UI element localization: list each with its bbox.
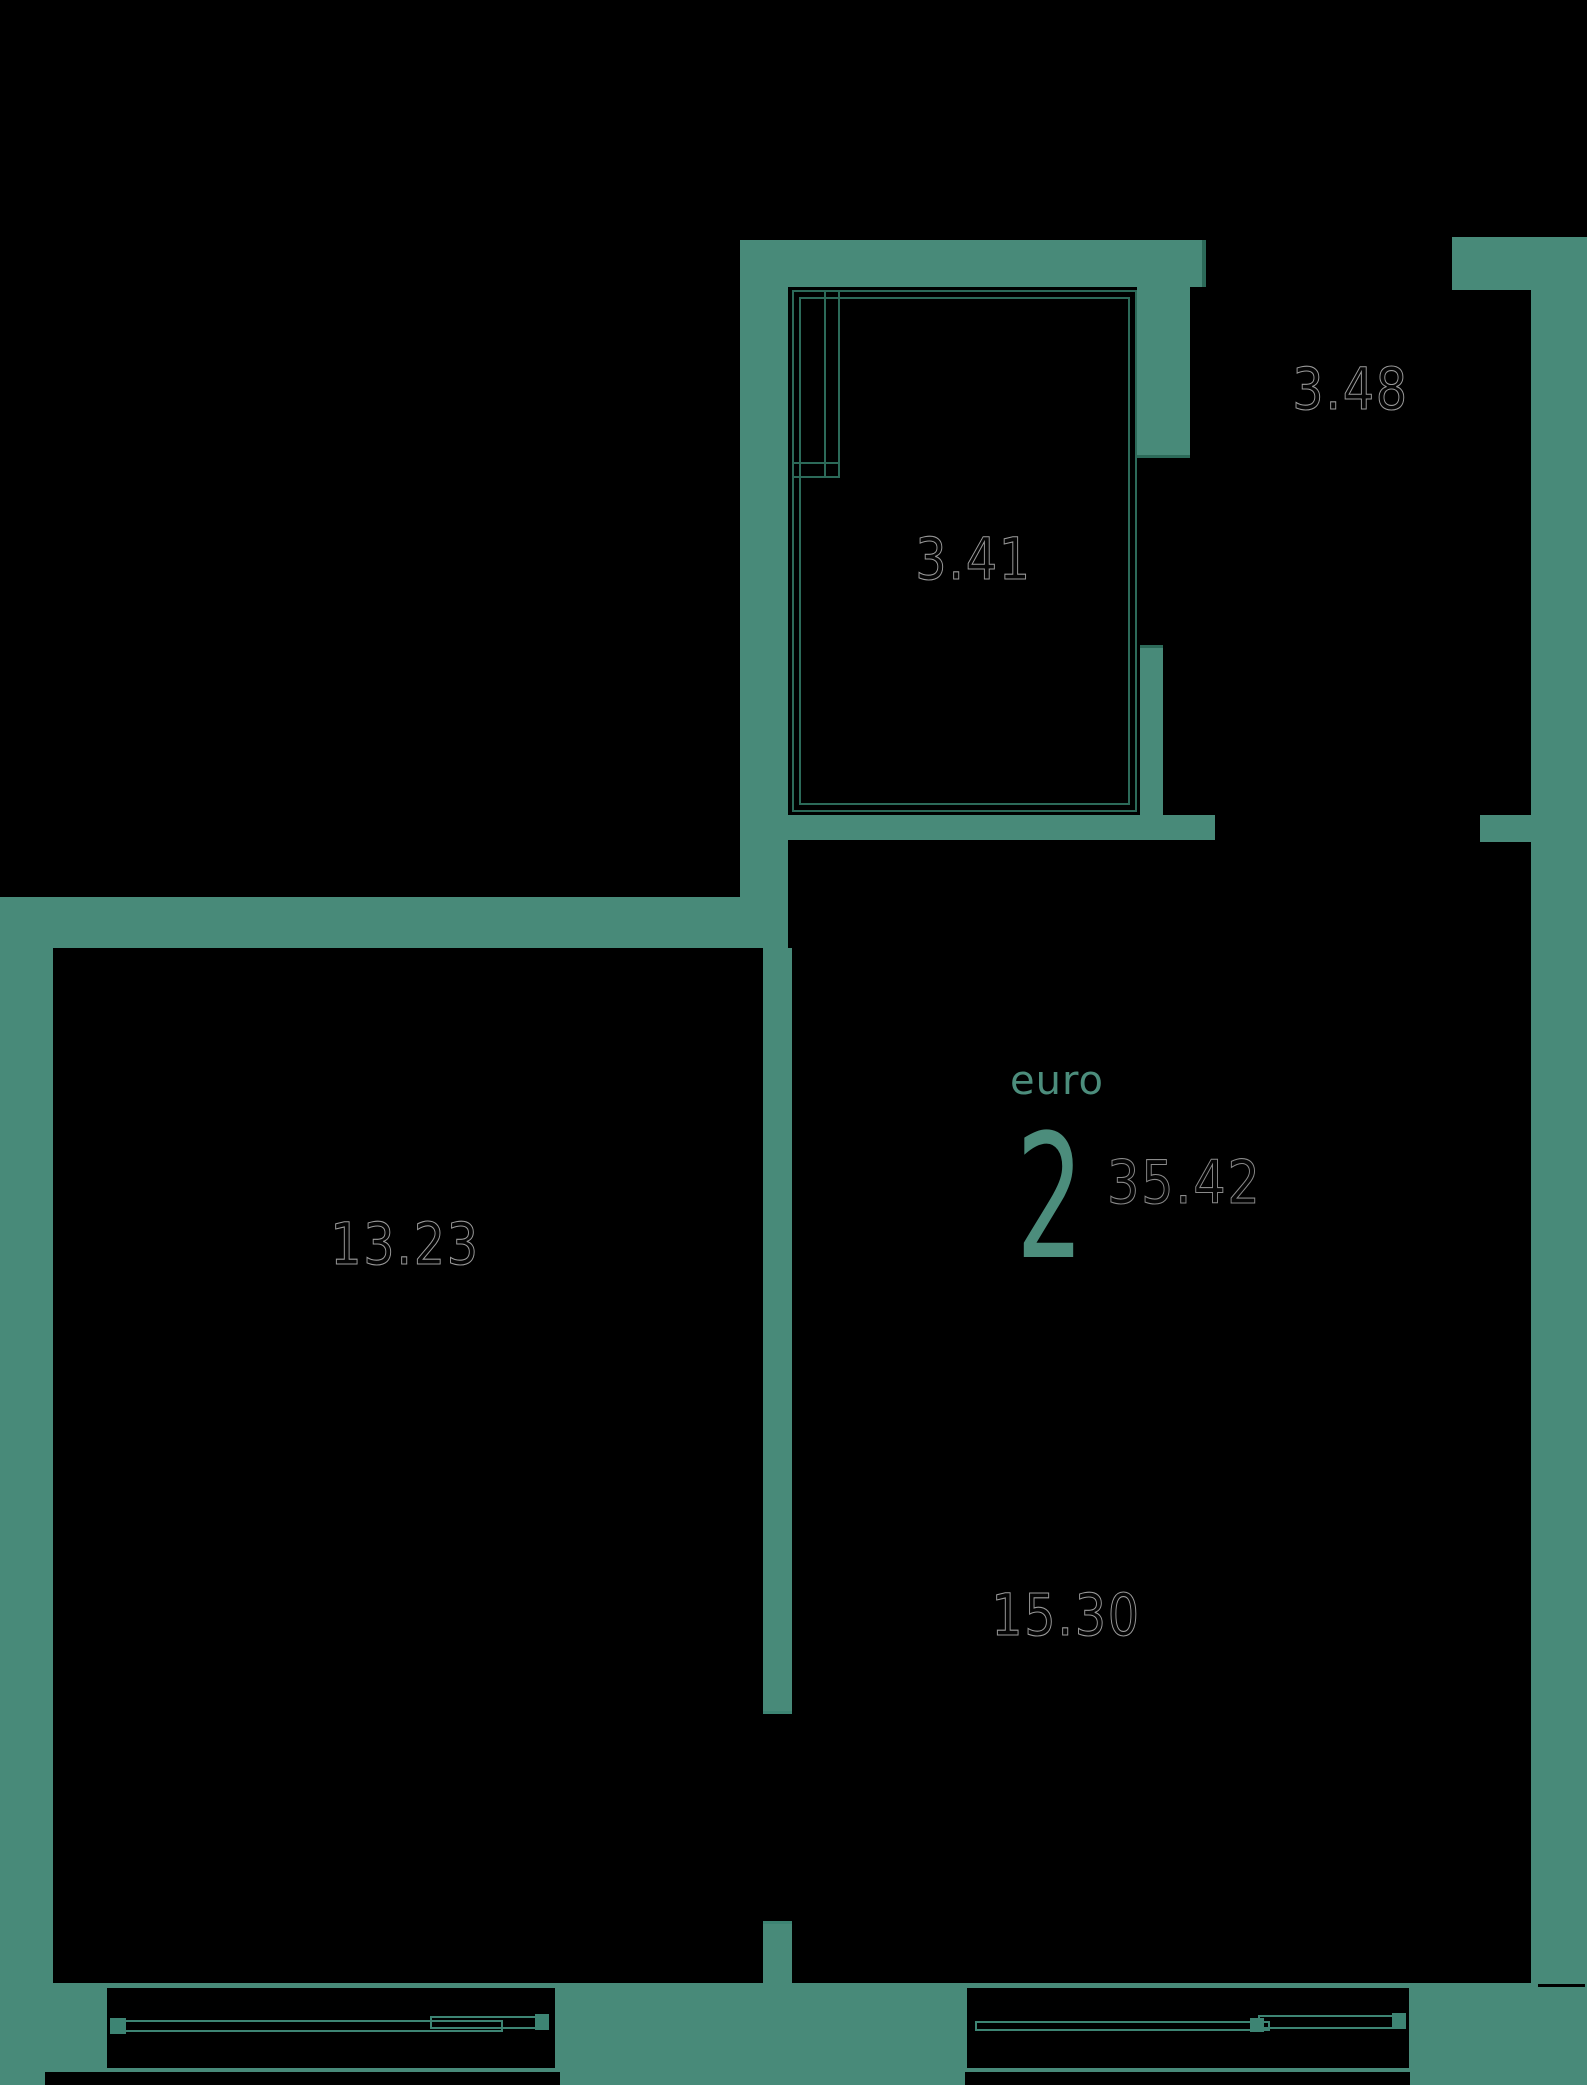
wall-room-partition-upper — [763, 948, 792, 1714]
partition-door-jamb-bottom — [763, 1921, 792, 1924]
window-left-cap-b — [535, 2014, 549, 2030]
window-right-sash-long — [975, 2021, 1270, 2031]
room-label-bathroom: 3.41 — [915, 525, 1032, 593]
room-label-bedroom: 13.23 — [330, 1210, 480, 1278]
wall-below-bathroom — [788, 815, 1215, 840]
wall-left-room-top — [0, 897, 763, 948]
wall-top-left-segment — [740, 240, 1205, 287]
bathroom-door-jamb-bottom — [1140, 645, 1163, 648]
duct-shaft-inner-hline — [792, 462, 840, 464]
window-right-sash-short — [1258, 2015, 1398, 2029]
duct-shaft-inner-vline — [824, 290, 826, 478]
window-left-cap-a — [110, 2018, 126, 2034]
window-under-strip-right — [965, 2072, 1410, 2085]
entrance-door-jamb — [1202, 240, 1206, 287]
bathroom-door-jamb-top — [1137, 455, 1190, 458]
room-label-living-room: 15.30 — [991, 1581, 1141, 1649]
room-label-hallway: 3.48 — [1292, 355, 1409, 423]
window-right-cap-b — [1392, 2013, 1406, 2029]
wall-hall-stub — [1480, 815, 1531, 842]
floor-plan: 3.41 3.48 13.23 15.30 euro 2 35.42 — [0, 0, 1587, 2085]
wall-bathroom-right-upper — [1137, 287, 1190, 457]
wall-bathroom-right-lower — [1140, 647, 1163, 840]
window-right-cap-a — [1250, 2018, 1264, 2032]
duct-shaft-outline — [792, 290, 840, 478]
right-corner-line — [1538, 1984, 1585, 1987]
window-under-strip-left — [45, 2072, 560, 2085]
partition-door-jamb-top — [763, 1711, 792, 1714]
window-left-sash-short — [430, 2016, 545, 2029]
total-area: 35.42 — [1107, 1148, 1262, 1218]
wall-room-partition-lower — [763, 1924, 792, 1983]
wall-right-exterior — [1531, 237, 1587, 2085]
wall-left-exterior — [0, 897, 53, 2085]
wall-center-vertical-thick — [740, 240, 788, 948]
unit-rooms-count: 2 — [1016, 1112, 1084, 1284]
